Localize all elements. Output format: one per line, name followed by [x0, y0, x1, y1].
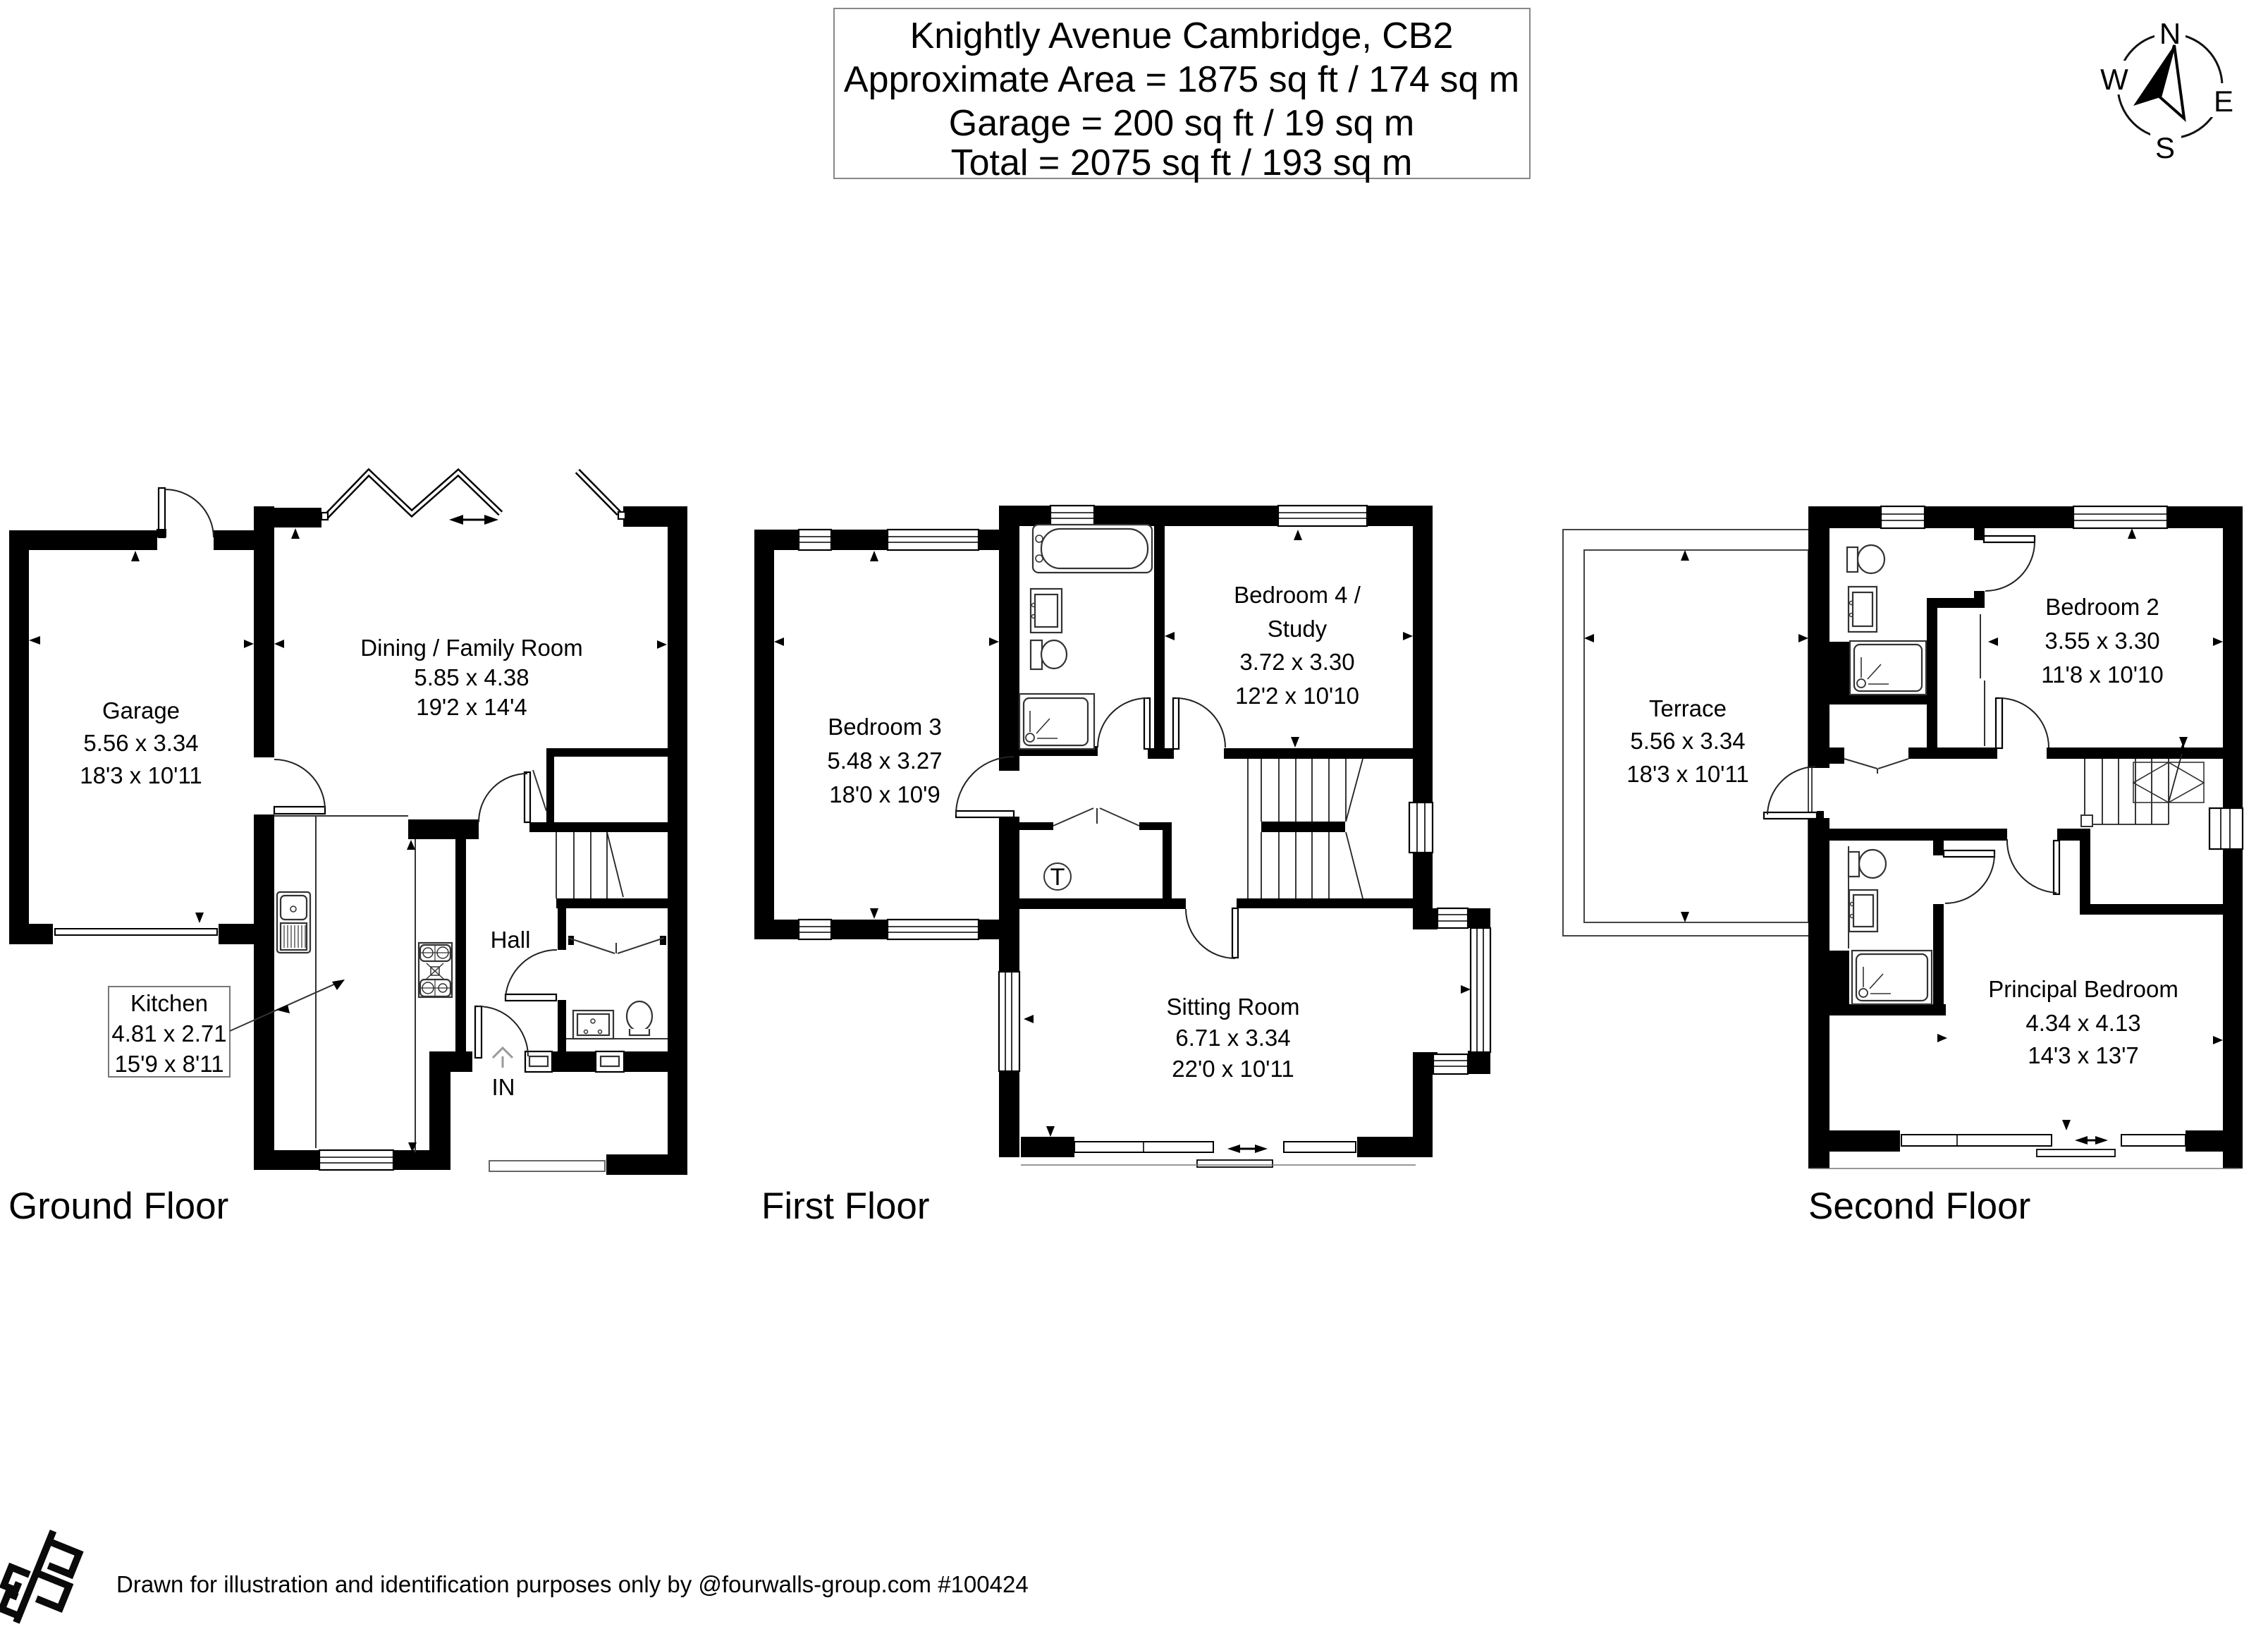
svg-text:19'2 x 14'4: 19'2 x 14'4 [416, 694, 527, 720]
svg-text:3.72 x 3.30: 3.72 x 3.30 [1239, 649, 1354, 675]
svg-text:IN: IN [492, 1074, 515, 1100]
svg-text:Bedroom 3: Bedroom 3 [828, 714, 941, 740]
svg-text:22'0 x 10'11: 22'0 x 10'11 [1172, 1056, 1294, 1082]
svg-text:Bedroom 2: Bedroom 2 [2045, 594, 2159, 620]
svg-text:5.56 x 3.34: 5.56 x 3.34 [1630, 728, 1745, 754]
svg-text:Dining / Family Room: Dining / Family Room [360, 635, 582, 661]
svg-text:E: E [2214, 85, 2233, 118]
svg-text:5.48 x 3.27: 5.48 x 3.27 [827, 748, 942, 774]
svg-text:Ground Floor: Ground Floor [8, 1185, 228, 1227]
svg-text:First Floor: First Floor [761, 1185, 930, 1227]
svg-text:Second Floor: Second Floor [1808, 1185, 2030, 1227]
svg-text:Knightly Avenue Cambridge, CB2: Knightly Avenue Cambridge, CB2 [910, 16, 1454, 56]
svg-text:Garage: Garage [102, 697, 180, 724]
svg-text:Drawn for illustration and ide: Drawn for illustration and identificatio… [116, 1571, 1029, 1597]
svg-text:Sitting Room: Sitting Room [1167, 994, 1300, 1020]
svg-text:18'3 x 10'11: 18'3 x 10'11 [80, 762, 202, 788]
svg-text:W: W [2100, 63, 2128, 96]
svg-text:4.34 x 4.13: 4.34 x 4.13 [2025, 1010, 2140, 1036]
svg-text:T: T [1050, 864, 1065, 891]
svg-text:18'3 x 10'11: 18'3 x 10'11 [1626, 761, 1748, 787]
svg-text:Hall: Hall [491, 927, 531, 953]
svg-text:N: N [2159, 17, 2181, 50]
svg-text:5.85 x 4.38: 5.85 x 4.38 [414, 664, 529, 690]
svg-text:12'2 x 10'10: 12'2 x 10'10 [1235, 683, 1359, 709]
svg-text:Total = 2075 sq ft / 193 sq m: Total = 2075 sq ft / 193 sq m [951, 142, 1413, 183]
svg-text:Kitchen: Kitchen [130, 990, 208, 1016]
svg-text:5.56 x 3.34: 5.56 x 3.34 [83, 730, 198, 756]
svg-text:Approximate Area = 1875 sq ft: Approximate Area = 1875 sq ft / 174 sq m [844, 59, 1519, 100]
svg-text:Principal Bedroom: Principal Bedroom [1988, 976, 2178, 1002]
svg-text:3.55 x 3.30: 3.55 x 3.30 [2045, 628, 2159, 654]
svg-text:11'8 x 10'10: 11'8 x 10'10 [2041, 661, 2163, 688]
svg-text:Study: Study [1268, 616, 1328, 642]
svg-text:14'3 x 13'7: 14'3 x 13'7 [2028, 1042, 2139, 1068]
svg-text:Bedroom 4 /: Bedroom 4 / [1234, 582, 1361, 608]
svg-text:18'0 x 10'9: 18'0 x 10'9 [829, 781, 940, 807]
svg-text:6.71 x 3.34: 6.71 x 3.34 [1175, 1025, 1290, 1051]
svg-text:Garage = 200 sq ft / 19 sq m: Garage = 200 sq ft / 19 sq m [949, 103, 1415, 144]
svg-text:Terrace: Terrace [1649, 695, 1727, 721]
svg-text:15'9 x 8'11: 15'9 x 8'11 [114, 1051, 223, 1077]
svg-text:4.81 x 2.71: 4.81 x 2.71 [111, 1020, 226, 1047]
svg-text:S: S [2155, 131, 2175, 164]
